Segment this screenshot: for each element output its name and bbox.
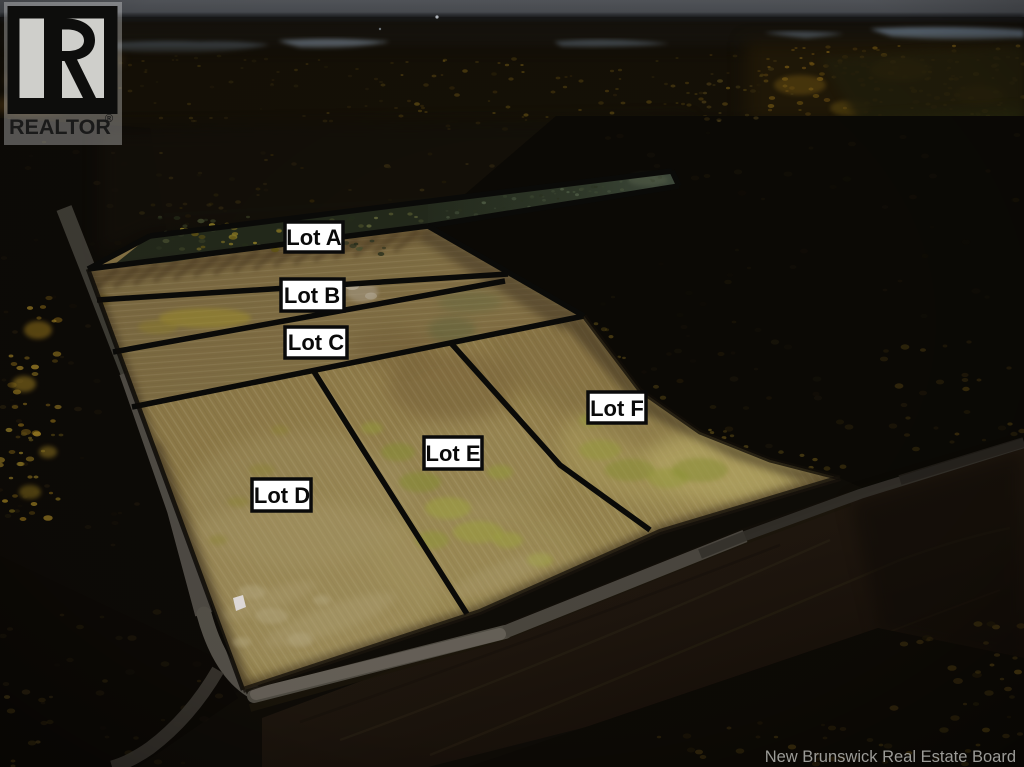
svg-text:Lot B: Lot B: [284, 283, 340, 308]
svg-text:Lot F: Lot F: [590, 396, 644, 421]
svg-text:New Brunswick Real Estate Boar: New Brunswick Real Estate Board: [765, 748, 1016, 766]
svg-text:Lot A: Lot A: [286, 225, 341, 250]
svg-text:Lot E: Lot E: [426, 441, 481, 466]
svg-text:Lot D: Lot D: [254, 483, 310, 508]
svg-text:REALTOR: REALTOR: [9, 115, 111, 139]
svg-text:®: ®: [105, 113, 113, 125]
svg-text:Lot C: Lot C: [288, 330, 344, 355]
